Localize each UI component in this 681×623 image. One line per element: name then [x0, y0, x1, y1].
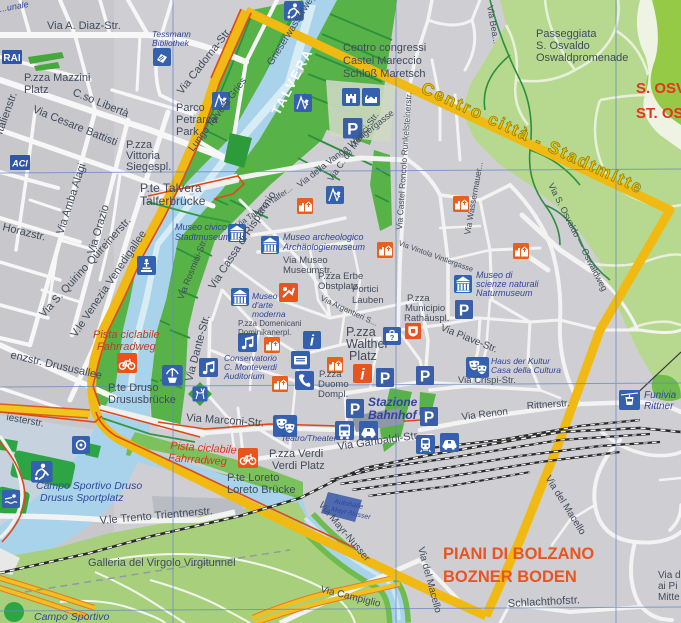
svg-text:ai Pi: ai Pi — [658, 581, 677, 592]
svg-text:ST. OS: ST. OS — [636, 105, 681, 122]
svg-text:Oswaldpromenade: Oswaldpromenade — [536, 52, 628, 64]
svg-text:Schloß Maretsch: Schloß Maretsch — [343, 68, 426, 80]
svg-text:Castel Mareccio: Castel Mareccio — [343, 55, 422, 67]
svg-text:P.zza Mazzini: P.zza Mazzini — [24, 72, 90, 84]
svg-text:Rittner: Rittner — [644, 401, 674, 412]
svg-text:Loreto Brücke: Loreto Brücke — [227, 484, 295, 496]
svg-text:Petrarca: Petrarca — [176, 114, 218, 126]
svg-text:Centro congressi: Centro congressi — [343, 42, 426, 54]
svg-text:Siegespl.: Siegespl. — [126, 161, 171, 173]
svg-text:S. Osvaldo: S. Osvaldo — [536, 40, 590, 52]
svg-text:Dominikanerpl.: Dominikanerpl. — [238, 328, 291, 337]
svg-text:Archäologiemuseum: Archäologiemuseum — [282, 242, 366, 252]
svg-text:Museo civico: Museo civico — [175, 222, 227, 232]
svg-text:Verdi Platz: Verdi Platz — [272, 460, 325, 472]
svg-text:ACI: ACI — [11, 159, 28, 169]
svg-text:Auditorium: Auditorium — [223, 371, 265, 381]
svg-text:P.te Loreto: P.te Loreto — [227, 472, 279, 484]
svg-text:P.zza Domenicani: P.zza Domenicani — [238, 319, 302, 328]
svg-text:Funivia: Funivia — [644, 390, 677, 401]
svg-text:Casa della Cultura: Casa della Cultura — [491, 365, 561, 375]
svg-text:RAI: RAI — [3, 53, 20, 64]
svg-text:Dompl.: Dompl. — [318, 389, 348, 400]
svg-text:Drususbrücke: Drususbrücke — [108, 394, 176, 406]
svg-text:Talferbrücke: Talferbrücke — [140, 194, 206, 208]
svg-text:Galleria del Virgolo Virgitun: Galleria del Virgolo Virgitunnel — [88, 557, 236, 569]
svg-text:BOZNER BODEN: BOZNER BODEN — [443, 568, 577, 586]
svg-text:moderna: moderna — [252, 309, 286, 319]
svg-text:Campo Sportivo: Campo Sportivo — [34, 611, 109, 623]
svg-text:Parco: Parco — [176, 102, 205, 114]
svg-text:Campo Sportivo Druso: Campo Sportivo Druso — [36, 480, 142, 492]
svg-text:S. OSV: S. OSV — [636, 80, 681, 97]
svg-text:Via d: Via d — [658, 570, 681, 581]
svg-text:Museo archeologico: Museo archeologico — [283, 232, 364, 242]
svg-text:Platz: Platz — [24, 84, 48, 96]
svg-text:Pista ciclabile: Pista ciclabile — [93, 329, 160, 341]
svg-text:P.zza Verdi: P.zza Verdi — [269, 448, 323, 460]
svg-text:Stazione: Stazione — [368, 395, 418, 409]
svg-text:Park: Park — [176, 126, 199, 138]
svg-text:Drusus Sportplatz: Drusus Sportplatz — [40, 492, 124, 504]
svg-text:Via Crispi-Str.: Via Crispi-Str. — [458, 375, 516, 386]
svg-text:PIANI DI BOLZANO: PIANI DI BOLZANO — [443, 545, 594, 563]
svg-text:P.te Talvera: P.te Talvera — [140, 181, 202, 195]
svg-text:Passeggiata: Passeggiata — [536, 28, 597, 40]
svg-text:Bahnhof: Bahnhof — [368, 408, 418, 422]
svg-text:Naturmuseum: Naturmuseum — [476, 288, 533, 298]
svg-text:Mitte: Mitte — [658, 592, 680, 603]
svg-text:Lauben: Lauben — [352, 295, 384, 306]
svg-text:Teatro/Theater: Teatro/Theater — [281, 433, 338, 443]
svg-text:Via A. Diaz-Str.: Via A. Diaz-Str. — [47, 20, 121, 32]
svg-text:Fahrradweg: Fahrradweg — [97, 341, 157, 353]
svg-text:Platz: Platz — [349, 349, 377, 363]
svg-text:P.te Druso: P.te Druso — [108, 382, 159, 394]
svg-text:Bibliothek: Bibliothek — [152, 38, 190, 48]
svg-text:Portici: Portici — [352, 284, 378, 295]
